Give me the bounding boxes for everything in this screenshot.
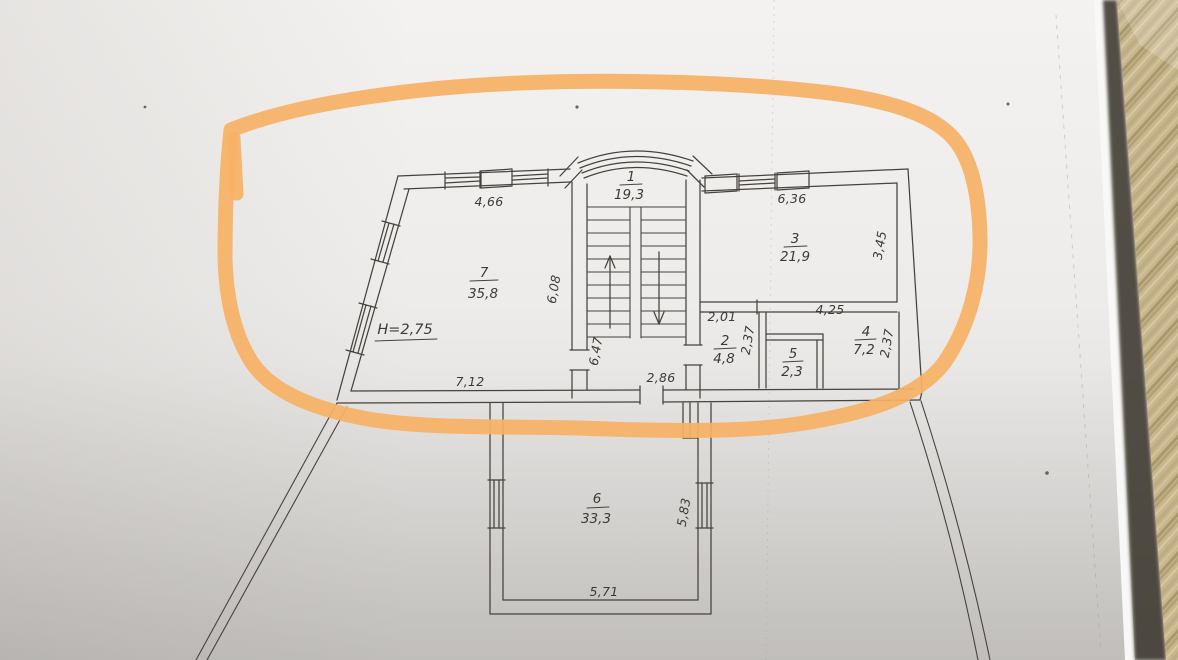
ceiling-height-label: H=2,75 [377,322,432,338]
marker-start-stub [234,138,237,194]
dim-room3-top: 6,36 [777,191,806,206]
room-3-number-label: 3 [791,231,800,247]
room-4-area-label: 7,2 [853,342,874,358]
room-5-number-label: 5 [789,346,798,362]
room-6-number-label: 6 [593,491,602,507]
dim-room2-top: 2,01 [707,309,736,324]
dim-room7-top: 4,66 [474,194,503,209]
room-2-area-label: 4,8 [713,351,734,367]
room-5-area-label: 2,3 [781,364,802,380]
room-2-number-label: 2 [721,333,730,349]
room-4-number-label: 4 [862,324,871,340]
room-1-number-label: 1 [627,169,636,185]
paper-bottom-shadow [0,0,1178,660]
room-7-area-label: 35,8 [468,286,498,302]
room-1-area-label: 19,3 [614,187,644,203]
paper [0,0,1178,660]
room-7-number-label: 7 [480,265,489,281]
room-3-area-label: 21,9 [780,249,810,265]
dim-hall-bottom: 2,86 [646,370,675,385]
photo-of-floor-plan: 1 19,3 7 35,8 3 21,9 2 4,8 5 2,3 4 7,2 6… [0,0,1178,660]
dim-room7-bottom: 7,12 [455,374,484,389]
scene-canvas: 1 19,3 7 35,8 3 21,9 2 4,8 5 2,3 4 7,2 6… [0,0,1178,660]
room-6-area-label: 33,3 [581,511,611,527]
dim-room6-bottom: 5,71 [589,584,618,599]
dim-room4-top: 4,25 [815,302,844,317]
